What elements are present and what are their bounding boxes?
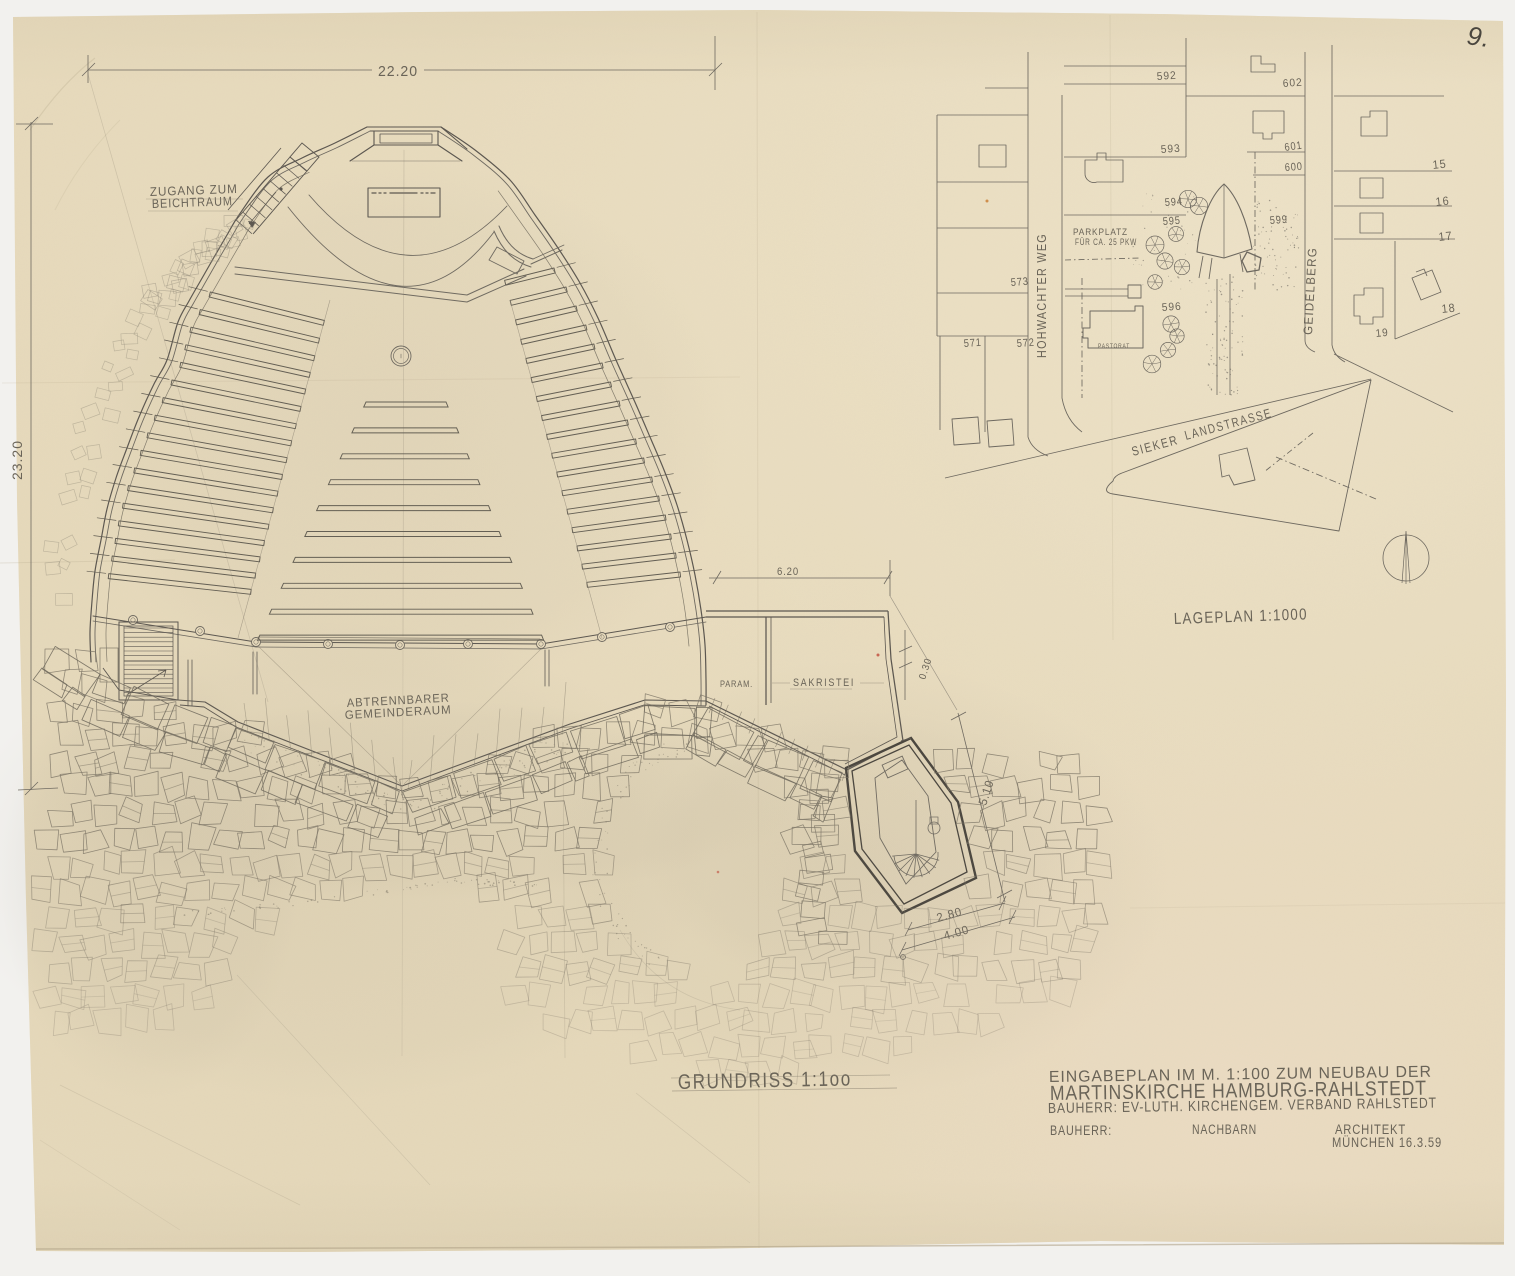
svg-text:15: 15	[1432, 157, 1447, 172]
svg-text:9.: 9.	[1465, 20, 1493, 53]
svg-text:PASTORAT: PASTORAT	[1098, 343, 1130, 350]
svg-text:BAUHERR:: BAUHERR:	[1050, 1123, 1112, 1138]
svg-text:601: 601	[1284, 140, 1303, 154]
svg-text:16: 16	[1435, 194, 1450, 209]
svg-text:NACHBARN: NACHBARN	[1192, 1122, 1257, 1137]
svg-text:572: 572	[1016, 337, 1035, 350]
svg-text:17: 17	[1438, 229, 1453, 244]
svg-text:573: 573	[1010, 276, 1029, 289]
svg-text:602: 602	[1282, 77, 1303, 90]
svg-text:594: 594	[1164, 196, 1183, 209]
svg-text:22.20: 22.20	[378, 63, 418, 80]
svg-text:FÜR CA. 25 PKW: FÜR CA. 25 PKW	[1075, 237, 1137, 247]
svg-text:6.20: 6.20	[777, 566, 799, 578]
svg-text:571: 571	[963, 337, 982, 350]
svg-text:599: 599	[1269, 214, 1288, 227]
svg-text:MÜNCHEN 16.3.59: MÜNCHEN 16.3.59	[1332, 1135, 1442, 1150]
svg-text:23.20: 23.20	[9, 440, 25, 480]
svg-text:600: 600	[1284, 161, 1303, 174]
svg-text:595: 595	[1162, 215, 1181, 228]
svg-text:593: 593	[1160, 143, 1181, 156]
svg-text:596: 596	[1161, 301, 1182, 314]
svg-text:592: 592	[1156, 70, 1177, 83]
svg-text:HOHWACHTER WEG: HOHWACHTER WEG	[1035, 233, 1049, 358]
svg-text:18: 18	[1441, 301, 1456, 316]
svg-text:19: 19	[1375, 327, 1389, 340]
